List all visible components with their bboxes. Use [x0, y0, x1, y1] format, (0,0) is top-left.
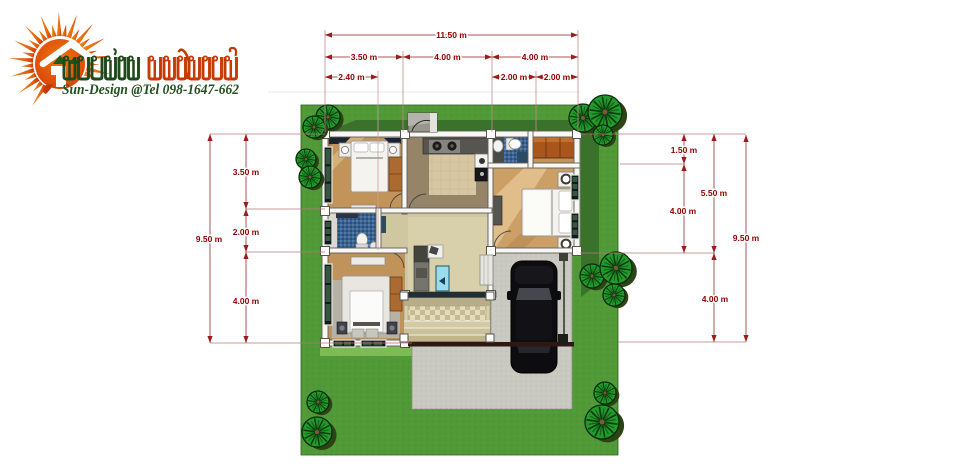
- svg-text:9.50 m: 9.50 m: [196, 234, 223, 244]
- svg-text:9.50 m: 9.50 m: [733, 233, 760, 243]
- svg-text:4.00 m: 4.00 m: [233, 296, 260, 306]
- svg-text:5.50 m: 5.50 m: [701, 188, 728, 198]
- svg-text:11.50 m: 11.50 m: [436, 30, 467, 40]
- svg-text:3.50 m: 3.50 m: [351, 52, 378, 62]
- svg-text:3.50 m: 3.50 m: [233, 167, 260, 177]
- svg-text:Sun-Design @Tel 098-1647-662: Sun-Design @Tel 098-1647-662: [62, 82, 239, 98]
- svg-text:2.00 m: 2.00 m: [544, 72, 571, 82]
- svg-text:1.50 m: 1.50 m: [671, 145, 698, 155]
- svg-text:2.00 m: 2.00 m: [501, 72, 528, 82]
- svg-text:4.00 m: 4.00 m: [670, 206, 697, 216]
- svg-text:4.00 m: 4.00 m: [702, 294, 729, 304]
- svg-text:4.00 m: 4.00 m: [434, 52, 461, 62]
- svg-text:2.40 m: 2.40 m: [338, 72, 365, 82]
- svg-text:2.00 m: 2.00 m: [233, 227, 260, 237]
- svg-text:4.00 m: 4.00 m: [522, 52, 549, 62]
